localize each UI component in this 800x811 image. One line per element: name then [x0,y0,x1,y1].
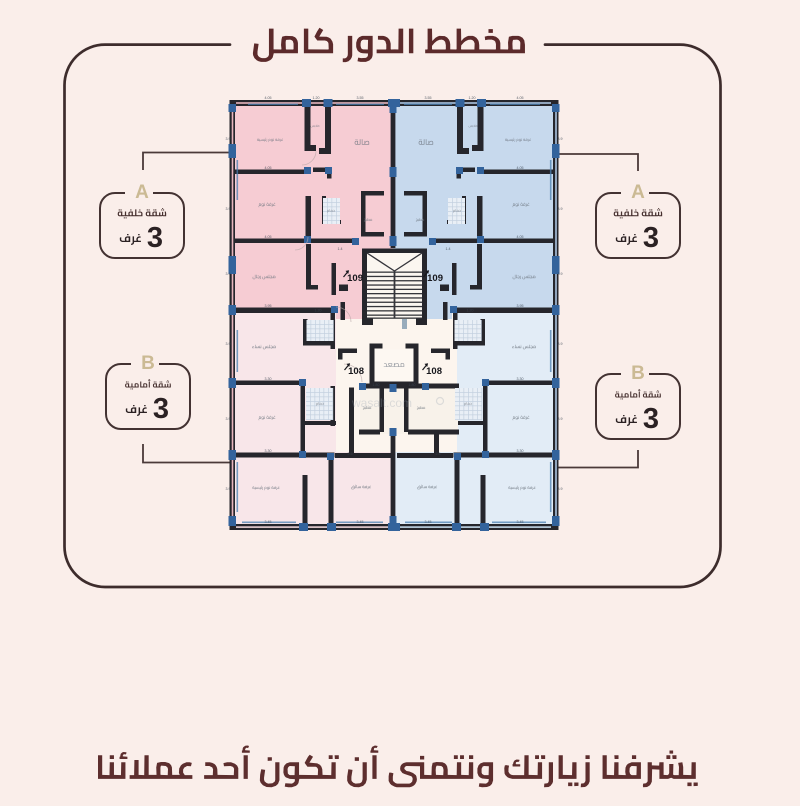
svg-text:3.30: 3.30 [265,449,272,453]
svg-text:2.5: 2.5 [436,452,441,456]
svg-text:4.05: 4.05 [265,166,272,170]
svg-text:wasalt.com: wasalt.com [351,396,412,410]
svg-text:3.45: 3.45 [517,520,524,524]
svg-text:3: 3 [147,222,163,254]
svg-text:2.5: 2.5 [348,452,353,456]
svg-text:B: B [141,353,155,374]
svg-text:1.20: 1.20 [469,96,476,100]
svg-text:3: 3 [153,393,169,425]
svg-text:3.9: 3.9 [558,417,563,421]
svg-text:4.05: 4.05 [265,96,272,100]
svg-text:B: B [631,363,645,384]
svg-text:109: 109 [347,273,363,284]
svg-text:3.95: 3.95 [265,304,272,308]
svg-text:3.95: 3.95 [517,304,524,308]
svg-text:3.9: 3.9 [558,272,563,276]
svg-text:4.05: 4.05 [517,235,524,239]
svg-text:A: A [135,182,149,203]
svg-text:A: A [631,182,645,203]
svg-text:3.9: 3.9 [558,342,563,346]
svg-text:3.9: 3.9 [558,207,563,211]
svg-text:108: 108 [348,366,364,377]
svg-text:1.4: 1.4 [338,247,343,251]
svg-text:1.20: 1.20 [313,96,320,100]
svg-text:3.9: 3.9 [558,487,563,491]
svg-text:1.80: 1.80 [373,383,380,387]
svg-text:4.05: 4.05 [517,96,524,100]
svg-text:3.9: 3.9 [558,137,563,141]
svg-text:3.55: 3.55 [425,96,432,100]
svg-text:4.05: 4.05 [265,235,272,239]
svg-text:1.80: 1.80 [409,383,416,387]
svg-text:3.45: 3.45 [265,520,272,524]
svg-text:1.4: 1.4 [446,247,451,251]
svg-text:3.45: 3.45 [357,520,364,524]
svg-text:3.9: 3.9 [226,272,231,276]
svg-text:3.9: 3.9 [226,487,231,491]
svg-text:3.9: 3.9 [226,342,231,346]
svg-text:3: 3 [643,222,659,254]
svg-text:3.45: 3.45 [425,520,432,524]
svg-text:1.20: 1.20 [315,309,322,313]
svg-text:3.9: 3.9 [226,207,231,211]
svg-text:4.05: 4.05 [517,166,524,170]
svg-text:3: 3 [643,403,659,435]
svg-text:3.30: 3.30 [517,377,524,381]
svg-text:3.55: 3.55 [357,96,364,100]
svg-text:108: 108 [426,366,442,377]
svg-text:3.30: 3.30 [517,449,524,453]
svg-text:3.30: 3.30 [265,377,272,381]
svg-text:109: 109 [427,273,443,284]
svg-text:3.9: 3.9 [226,417,231,421]
svg-text:1.20: 1.20 [467,309,474,313]
svg-text:3.9: 3.9 [226,137,231,141]
